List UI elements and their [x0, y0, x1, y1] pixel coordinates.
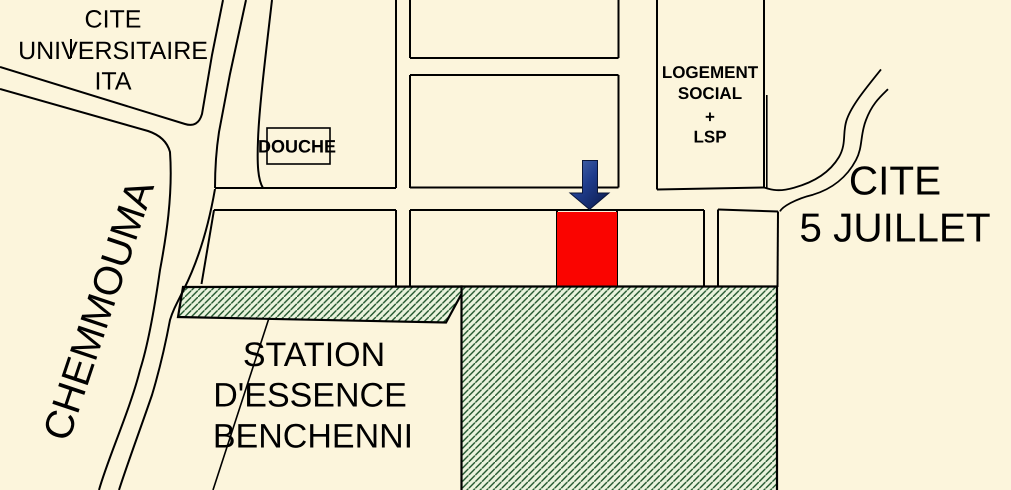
- svg-text:BENCHENNI: BENCHENNI: [213, 418, 413, 456]
- svg-text:LSP: LSP: [693, 128, 726, 147]
- svg-text:STATION: STATION: [243, 336, 385, 374]
- svg-text:CITE: CITE: [849, 158, 941, 204]
- svg-text:D'ESSENCE: D'ESSENCE: [213, 377, 407, 415]
- svg-text:LOGEMENT: LOGEMENT: [662, 63, 759, 82]
- svg-text:DOUCHE: DOUCHE: [258, 137, 336, 157]
- svg-text:CITE: CITE: [85, 5, 142, 33]
- svg-text:+: +: [705, 108, 715, 127]
- svg-text:5 JUILLET: 5 JUILLET: [799, 204, 990, 250]
- svg-text:SOCIAL: SOCIAL: [678, 84, 742, 103]
- svg-text:UNIVERSITAIRE: UNIVERSITAIRE: [18, 37, 208, 65]
- svg-text:ITA: ITA: [94, 68, 131, 96]
